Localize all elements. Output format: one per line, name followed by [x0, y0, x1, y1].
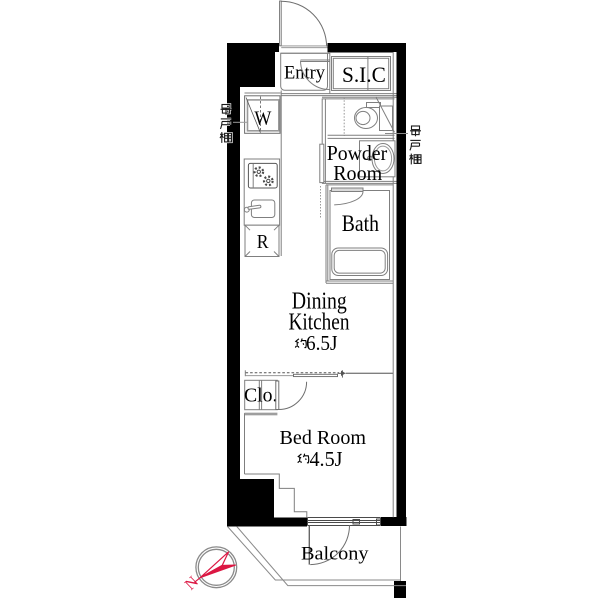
- svg-text:Entry: Entry: [284, 62, 325, 83]
- svg-text:Clo.: Clo.: [244, 384, 278, 406]
- svg-text:Room: Room: [333, 161, 382, 185]
- svg-text:4.5J: 4.5J: [310, 447, 343, 471]
- svg-text:N: N: [182, 573, 202, 594]
- svg-text:R: R: [257, 231, 269, 253]
- svg-text:Bath: Bath: [342, 211, 380, 236]
- svg-text:W: W: [254, 108, 271, 130]
- svg-text:S.I.C: S.I.C: [342, 62, 386, 87]
- svg-text:Balcony: Balcony: [301, 543, 369, 564]
- svg-text:6.5J: 6.5J: [306, 331, 338, 355]
- svg-text:Bed Room: Bed Room: [280, 427, 367, 449]
